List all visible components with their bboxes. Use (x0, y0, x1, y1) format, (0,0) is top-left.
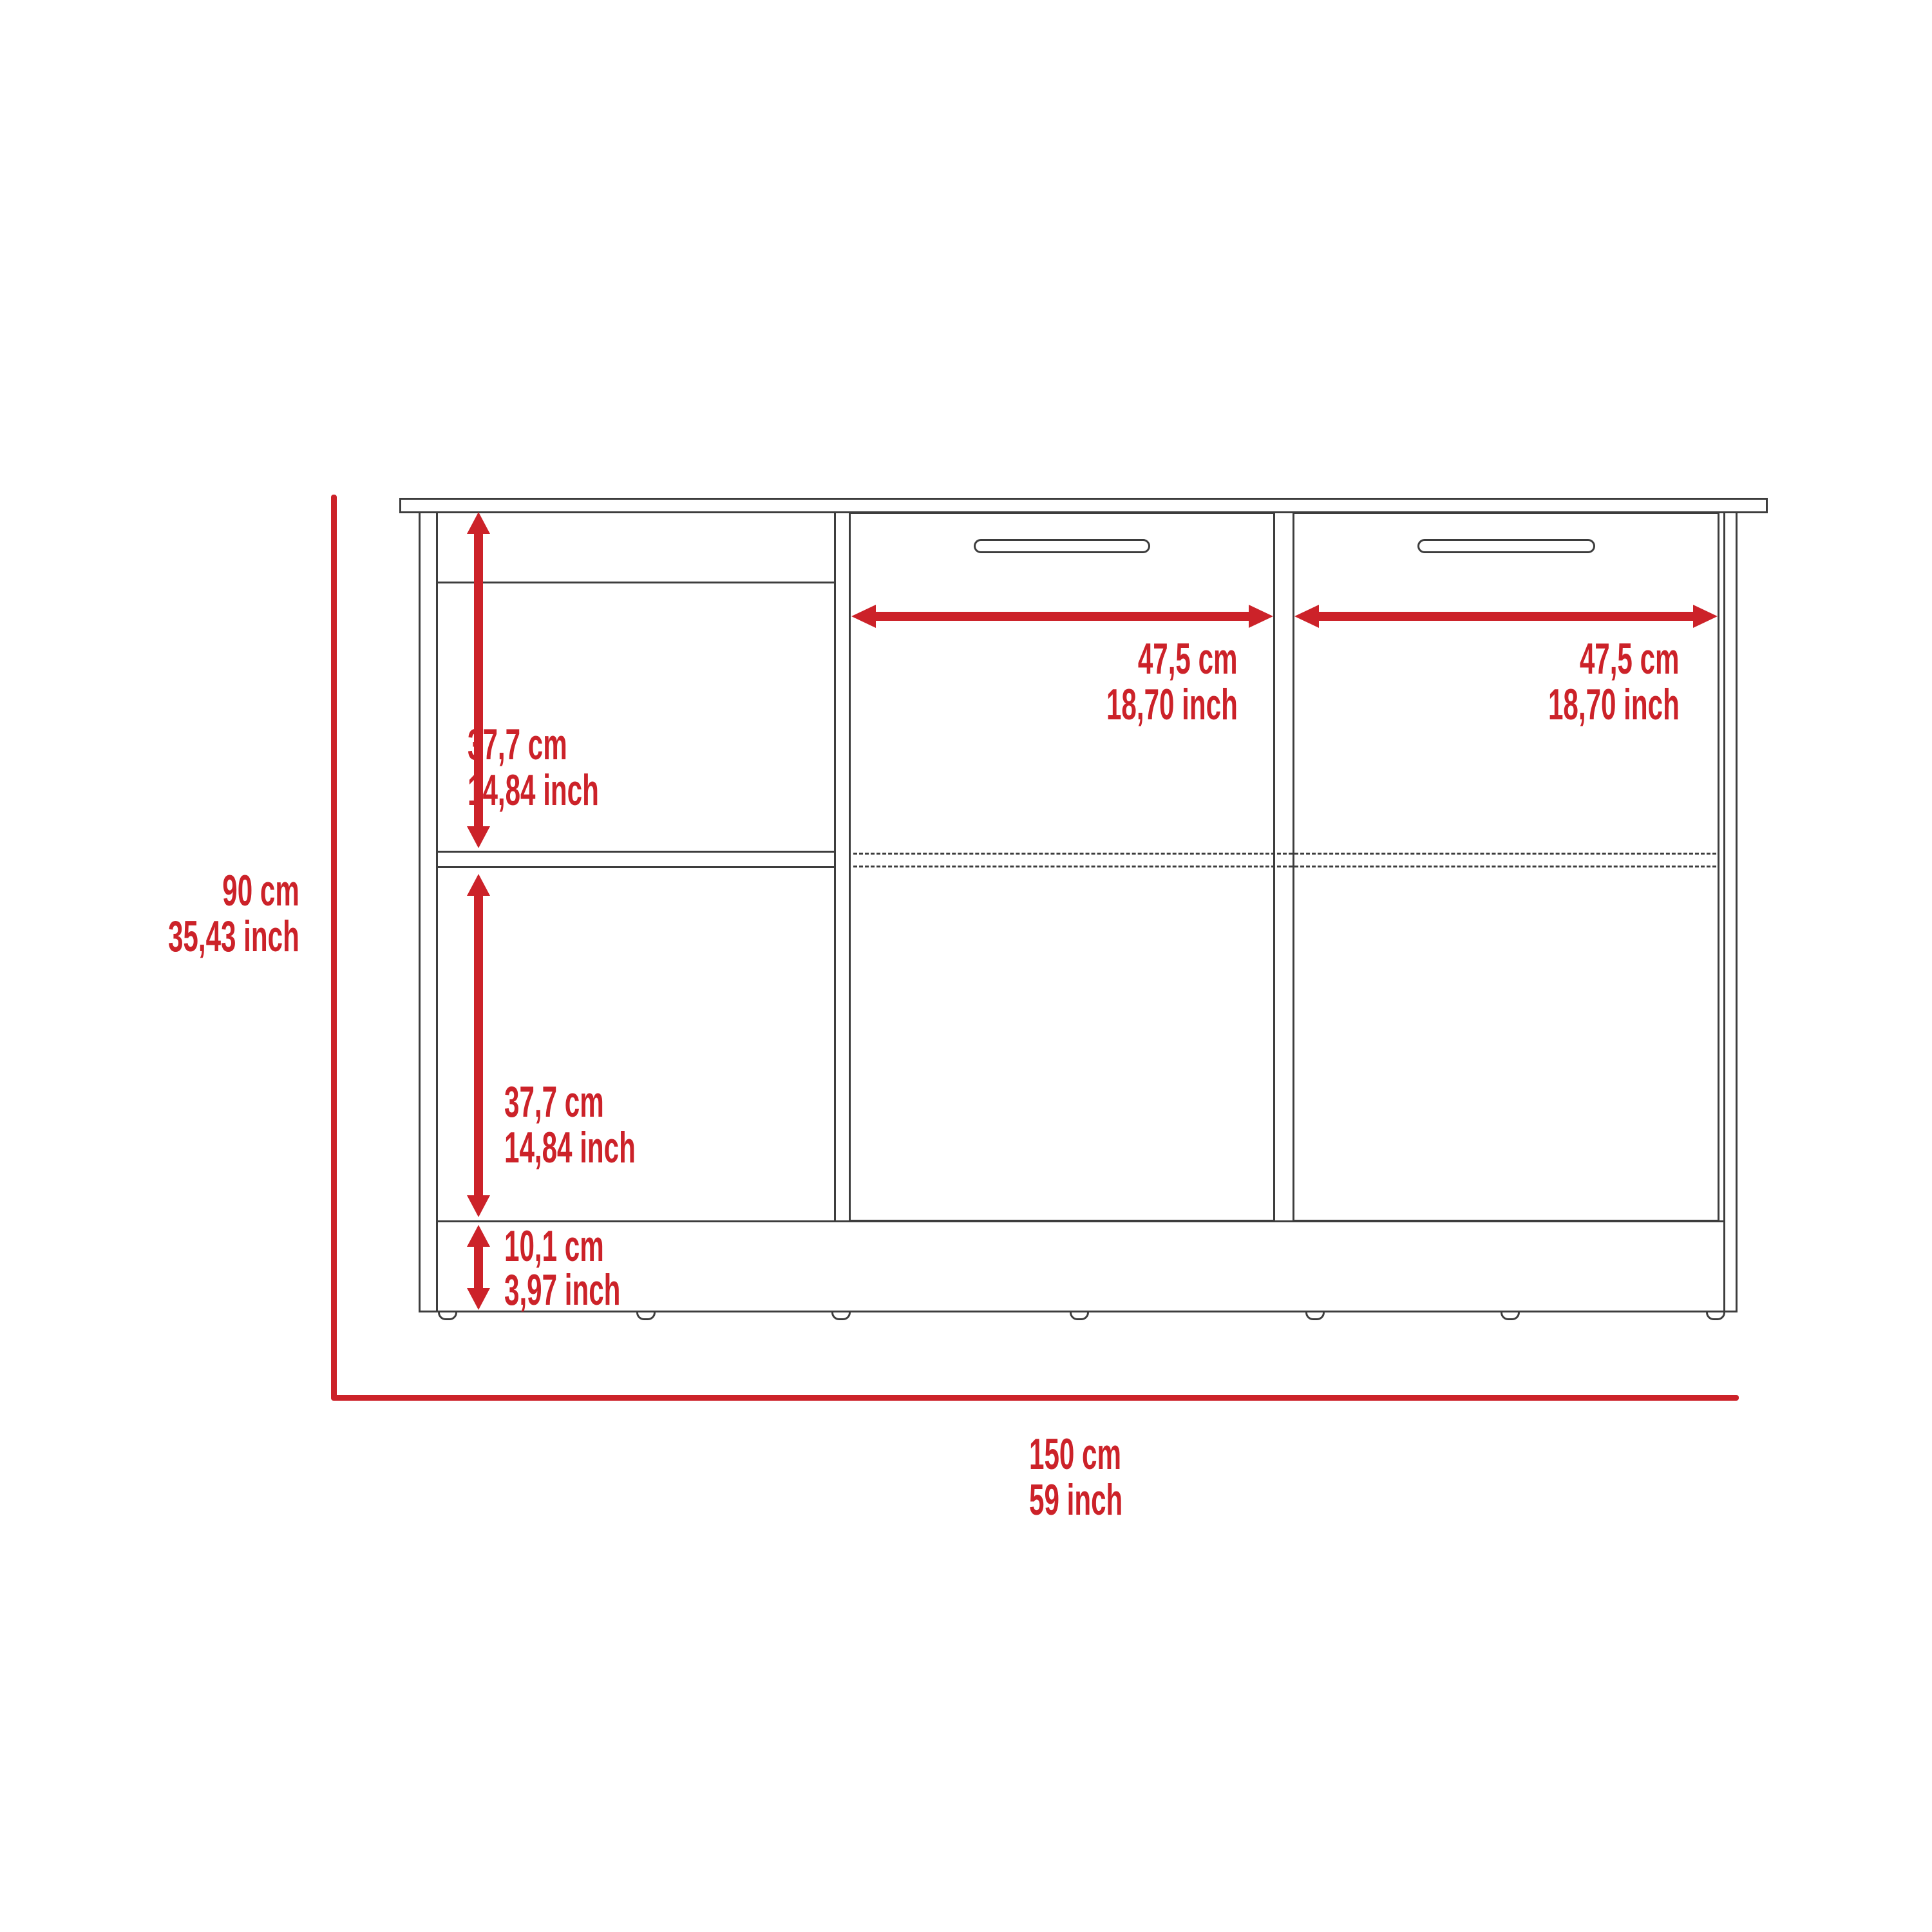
foot (636, 1312, 656, 1320)
right-door-handle (1417, 539, 1595, 553)
foot (438, 1312, 457, 1320)
foot (1070, 1312, 1089, 1320)
dim-arrow-right-icon (1249, 605, 1273, 628)
left-panel-outer-line (419, 512, 421, 1312)
left-door-width-label: 47,5 cm 18,70 inch (1026, 636, 1238, 728)
dim-arrow-right-icon (1693, 605, 1718, 628)
total-height-label: 90 cm 35,43 inch (88, 868, 299, 960)
hidden-shelf-dashed-line-top (853, 853, 1716, 855)
width-reference-line (331, 1395, 1739, 1401)
left-column-shelf-top-line (438, 851, 834, 853)
countertop-slab (399, 498, 1768, 513)
dim-arrow-down-icon (467, 826, 490, 848)
dimension-diagram: 90 cm 35,43 inch 37,7 cm 14,84 inch 37,7… (0, 0, 1932, 1932)
left-column-shelf-bottom-line (438, 866, 834, 868)
base-height-label: 10,1 cm 3,97 inch (504, 1224, 692, 1312)
dim-arrow-down-icon (467, 1195, 490, 1217)
upper-shelf-label: 37,7 cm 14,84 inch (468, 722, 679, 813)
dim-arrow-up-icon (467, 874, 490, 896)
partition-line (834, 512, 836, 1222)
left-column-top-rail-line (438, 582, 834, 583)
foot (1706, 1312, 1725, 1320)
hidden-shelf-dashed-line-bottom (853, 866, 1716, 867)
right-panel-outer-line (1736, 512, 1738, 1312)
foot (1305, 1312, 1325, 1320)
dim-arrow-up-icon (467, 512, 490, 534)
dim-arrow-left-icon (1294, 605, 1319, 628)
base-dim-arrow (474, 1245, 483, 1290)
left-door-handle (974, 539, 1150, 553)
dim-arrow-left-icon (851, 605, 876, 628)
lower-shelf-label: 37,7 cm 14,84 inch (504, 1079, 716, 1171)
foot (831, 1312, 851, 1320)
right-door-dim-arrow (1317, 612, 1694, 621)
lower-shelf-dim-arrow (474, 894, 483, 1197)
dim-arrow-up-icon (467, 1225, 490, 1247)
foot (1501, 1312, 1520, 1320)
dim-arrow-down-icon (467, 1288, 490, 1310)
height-reference-line (331, 495, 337, 1400)
right-door-width-label: 47,5 cm 18,70 inch (1468, 636, 1680, 728)
left-door-dim-arrow (874, 612, 1251, 621)
left-panel-inner-line (436, 512, 438, 1312)
total-width-label: 150 cm 59 inch (1029, 1432, 1180, 1523)
right-panel-inner-line (1723, 512, 1725, 1312)
